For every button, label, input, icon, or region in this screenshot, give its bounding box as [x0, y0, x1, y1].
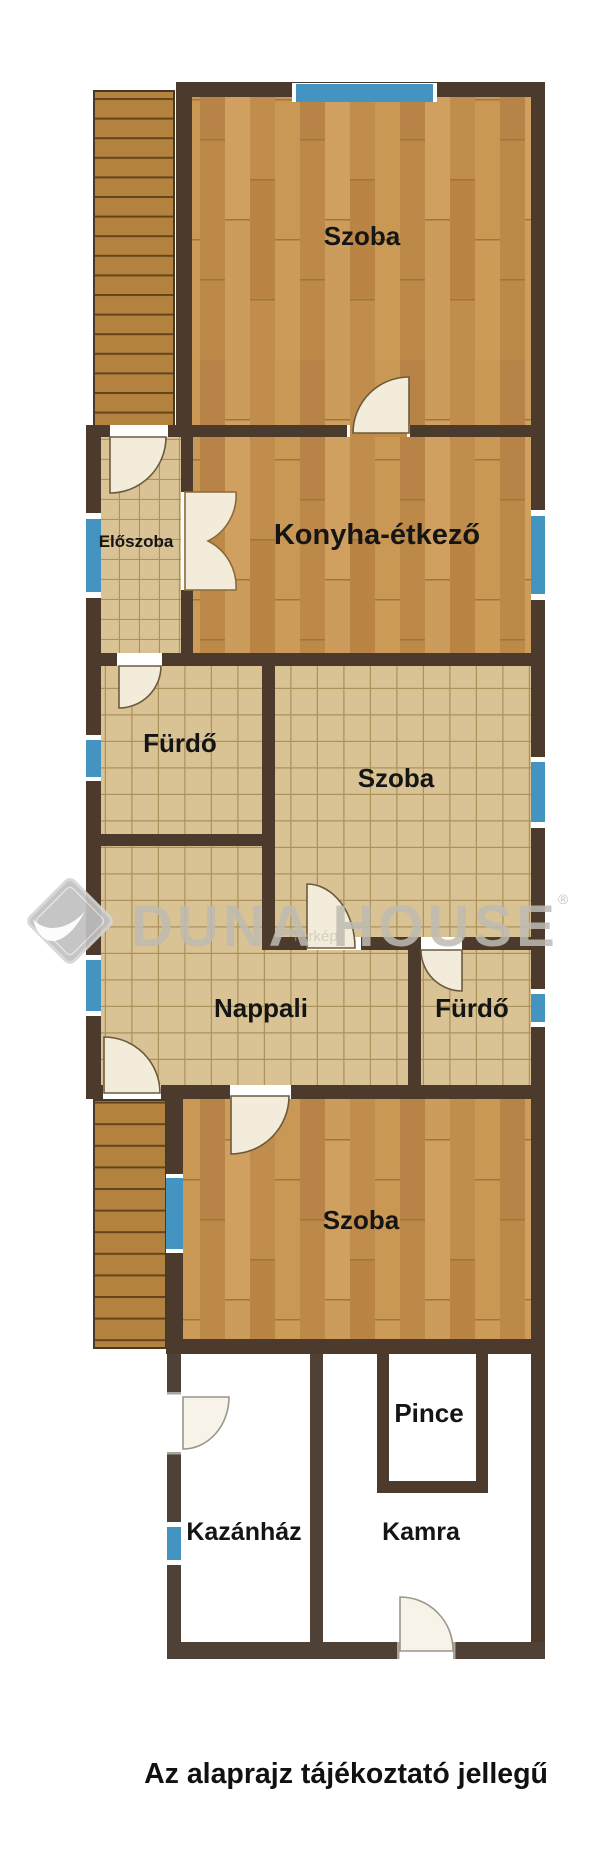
- svg-text:®: ®: [558, 891, 569, 907]
- svg-text:DUNA HOUSE: DUNA HOUSE: [131, 894, 559, 959]
- svg-text:Fürdő: Fürdő: [435, 993, 509, 1023]
- svg-text:Térkép: Térkép: [291, 928, 338, 945]
- svg-text:Kazánház: Kazánház: [186, 1518, 301, 1546]
- svg-text:Pince: Pince: [394, 1398, 463, 1428]
- svg-text:Szoba: Szoba: [324, 221, 401, 251]
- svg-text:Szoba: Szoba: [323, 1205, 400, 1235]
- svg-text:Előszoba: Előszoba: [99, 532, 174, 551]
- svg-text:Nappali: Nappali: [214, 993, 308, 1023]
- svg-text:Szoba: Szoba: [358, 763, 435, 793]
- svg-text:Az alaprajz tájékoztató jelleg: Az alaprajz tájékoztató jellegű: [144, 1758, 548, 1790]
- svg-text:Konyha-étkező: Konyha-étkező: [274, 519, 480, 551]
- svg-text:Kamra: Kamra: [382, 1518, 461, 1546]
- svg-text:Fürdő: Fürdő: [143, 728, 217, 758]
